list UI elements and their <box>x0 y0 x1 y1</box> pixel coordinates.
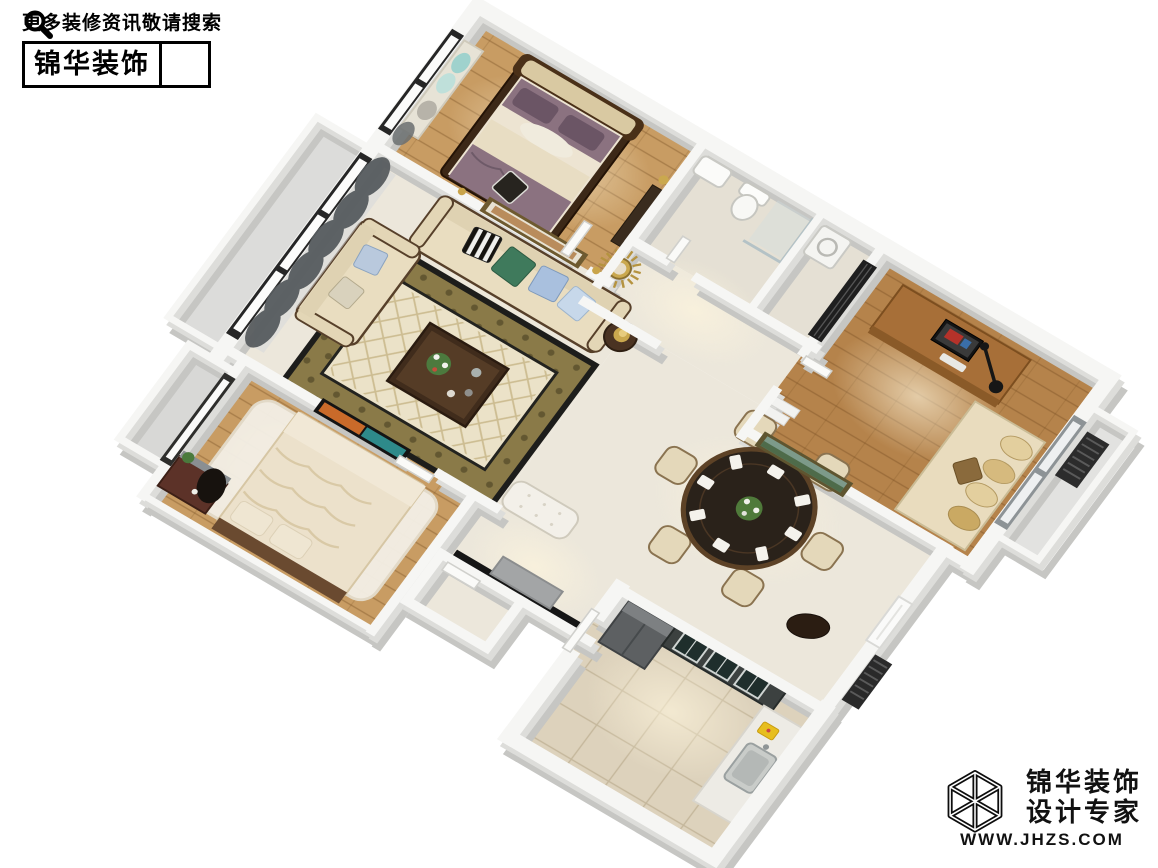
watermark-bottom: 锦华装饰 设计专家 WWW.JHZS.COM <box>942 767 1142 850</box>
brand-line1: 锦华装饰 <box>1026 767 1142 797</box>
search-icon <box>159 44 208 85</box>
brand-line2: 设计专家 <box>1026 797 1142 827</box>
floor-plan-render: 更多装修资讯敬请搜索 锦华装饰 锦华装饰 <box>0 0 1158 868</box>
isometric-apartment-scene <box>0 0 1158 868</box>
watermark-top: 更多装修资讯敬请搜索 锦华装饰 <box>22 8 222 88</box>
brand-name: 锦华装饰 <box>25 44 159 85</box>
brand-box: 锦华装饰 <box>22 41 211 88</box>
